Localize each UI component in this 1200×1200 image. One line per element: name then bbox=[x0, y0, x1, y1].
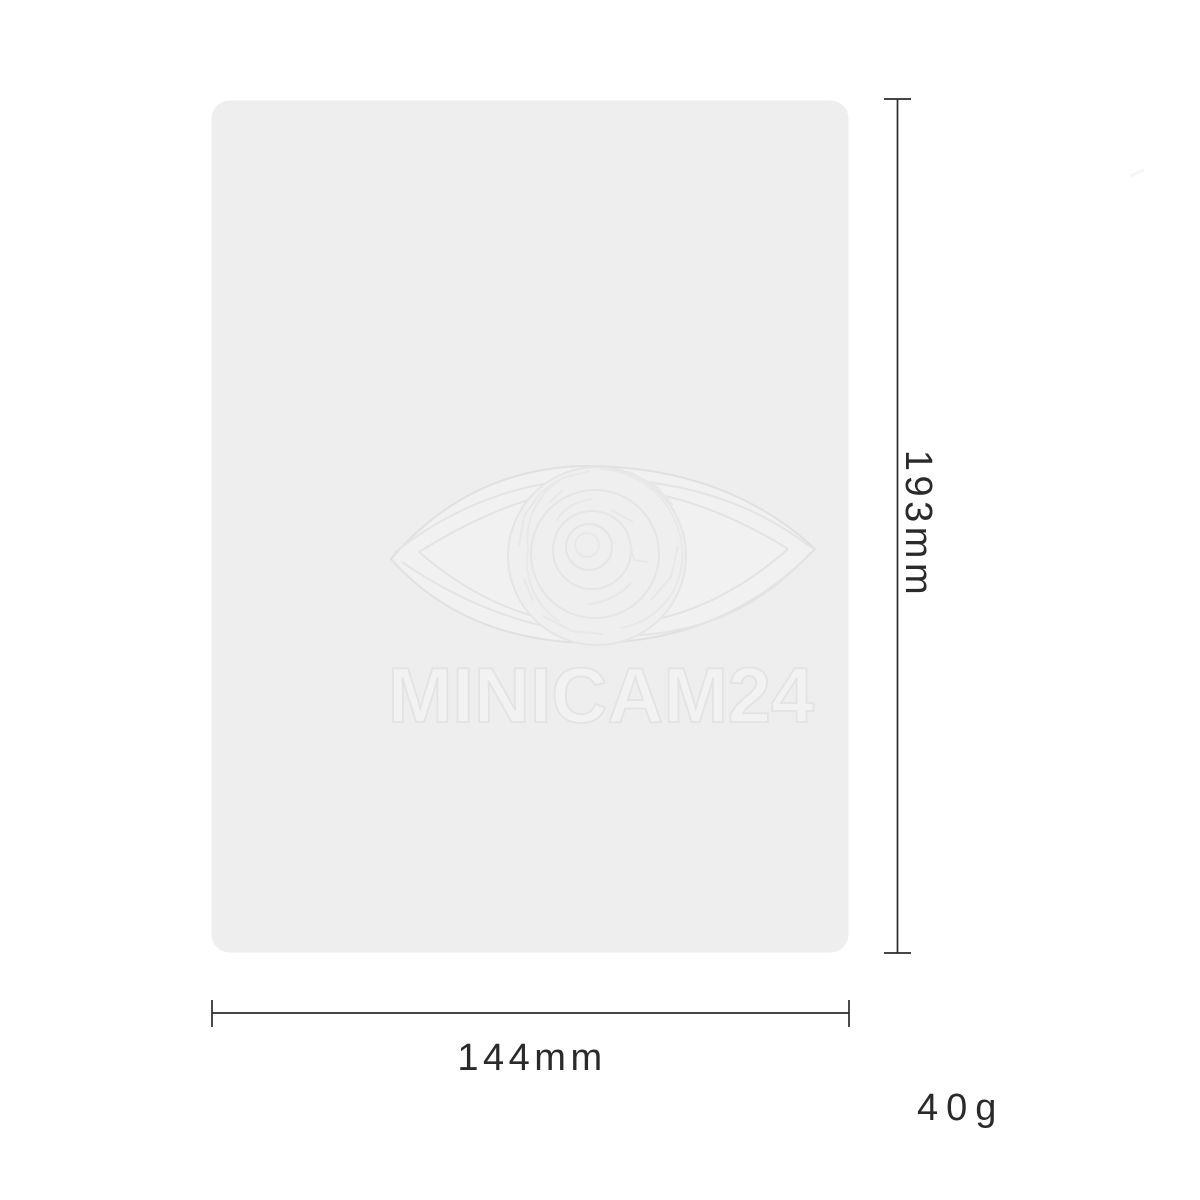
svg-text:144mm: 144mm bbox=[457, 1037, 606, 1079]
svg-text:193mm: 193mm bbox=[897, 450, 939, 599]
svg-text:40g: 40g bbox=[917, 1087, 1004, 1129]
svg-text:MINICAM24: MINICAM24 bbox=[388, 653, 814, 739]
